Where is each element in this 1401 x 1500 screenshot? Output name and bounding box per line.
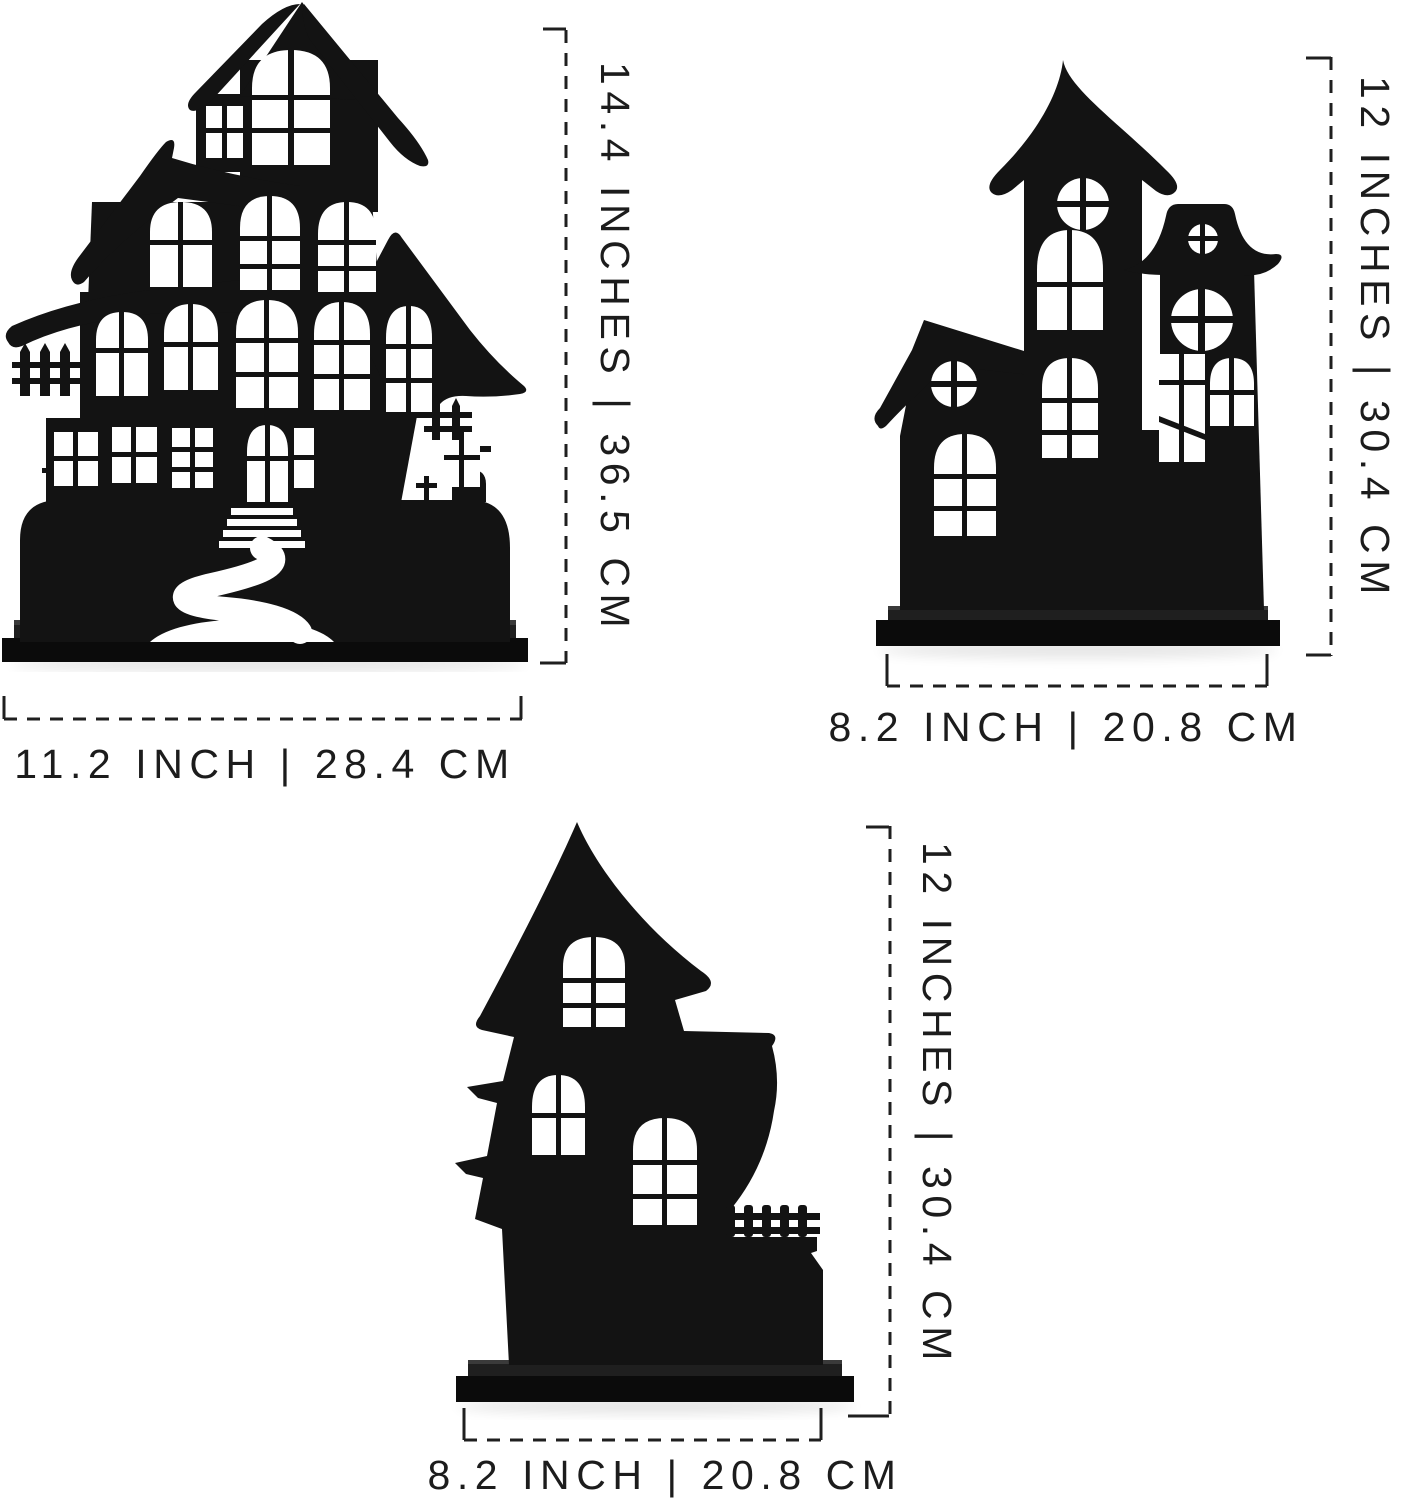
picket-fence: [718, 1205, 820, 1237]
house-body: [455, 822, 823, 1365]
haunted-house-cottage: [450, 820, 870, 1420]
height-label-house-3: 12 INCHES | 30.4 CM: [914, 842, 959, 1367]
haunted-house-large-silhouette: [0, 0, 532, 672]
haunted-house-cottage-silhouette: [450, 820, 870, 1420]
height-label-house-1: 14.4 INCHES | 36.5 CM: [592, 62, 637, 634]
height-label-house-2: 12 INCHES | 30.4 CM: [1352, 76, 1397, 601]
width-label-house-1: 11.2 INCH | 28.4 CM: [0, 742, 530, 787]
haunted-house-large: [0, 0, 532, 672]
halloween-house-dimensions-image: 14.4 INCHES | 36.5 CM 11.2 INCH | 28.4 C…: [0, 0, 1401, 1500]
haunted-house-castle-silhouette: [872, 58, 1302, 690]
width-label-house-2: 8.2 INCH | 20.8 CM: [818, 705, 1314, 750]
haunted-house-castle: [872, 58, 1302, 690]
display-base: [456, 1360, 854, 1402]
display-base: [876, 606, 1280, 646]
width-label-house-3: 8.2 INCH | 20.8 CM: [420, 1453, 910, 1498]
